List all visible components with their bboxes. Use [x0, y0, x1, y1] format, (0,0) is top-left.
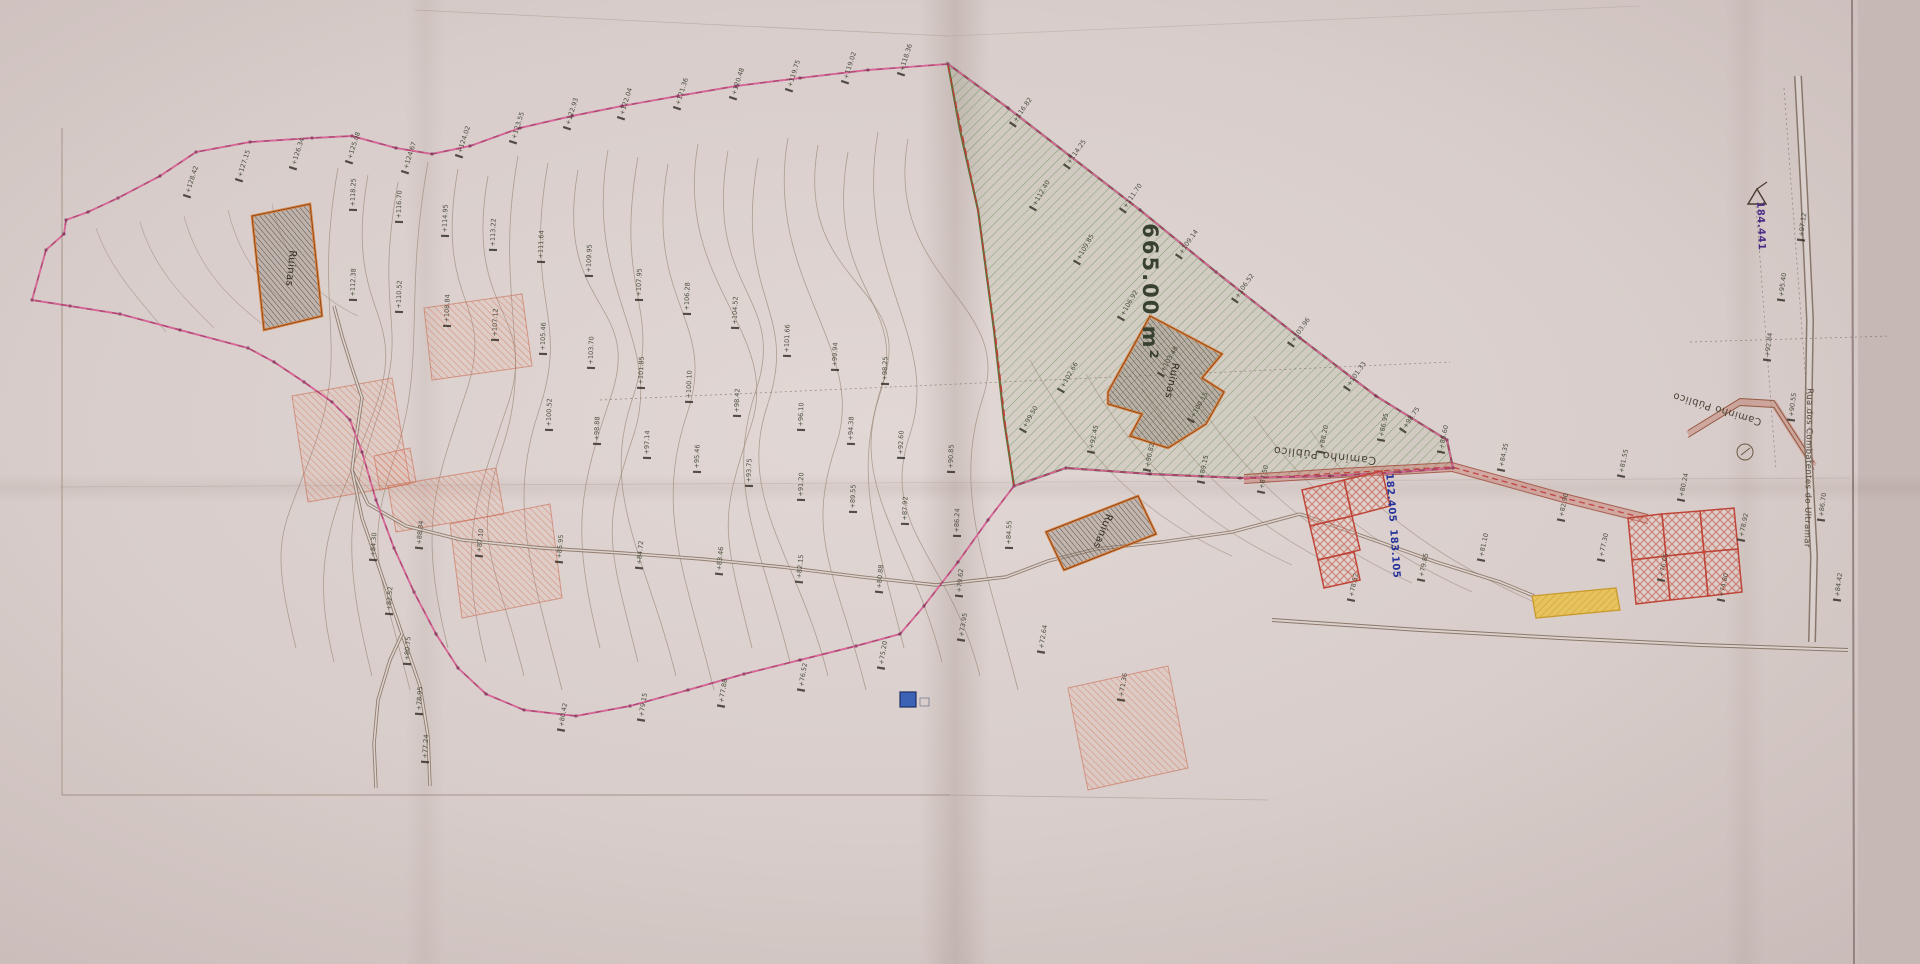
spot-tick	[745, 485, 753, 487]
spot-elevation: +98.88	[592, 416, 601, 445]
spot-tick	[443, 325, 451, 327]
boundary-pin	[956, 560, 959, 563]
boundary-pin	[374, 498, 377, 501]
boundary-pin	[310, 136, 313, 139]
spot-elevation: +95.46	[692, 444, 701, 473]
spot-value: +105.46	[539, 322, 548, 350]
boundary-pin	[30, 298, 33, 301]
spot-tick	[637, 387, 645, 389]
boundary-pin	[116, 196, 119, 199]
spot-value: +89.55	[849, 484, 858, 508]
spot-tick	[881, 383, 889, 385]
boundary-pin	[434, 632, 437, 635]
boundary-pin	[246, 346, 249, 349]
boundary-pin	[44, 248, 47, 251]
boundary-pin	[330, 400, 333, 403]
spot-value: +101.85	[637, 356, 646, 384]
spot-elevation: +89.55	[848, 484, 857, 513]
spot-value: +110.52	[395, 280, 404, 308]
spot-elevation: +96.10	[796, 402, 805, 431]
boundary-pin	[1328, 474, 1331, 477]
spot-elevation: +94.38	[846, 416, 855, 445]
spot-value: +98.88	[593, 416, 602, 440]
spot-tick	[731, 327, 739, 329]
spot-value: +116.70	[395, 190, 404, 218]
spot-tick	[585, 275, 593, 277]
boundary-pin	[1138, 208, 1141, 211]
spot-value: +98.42	[733, 388, 742, 412]
spot-tick	[783, 355, 791, 357]
boundary-pin	[798, 658, 801, 661]
spot-value: +80.75	[403, 636, 413, 661]
building-red-hatched	[1662, 511, 1704, 556]
spot-value: +113.22	[489, 218, 498, 246]
spot-elevation: +99.94	[830, 342, 839, 371]
fold-crease	[0, 474, 1920, 502]
spot-elevation: +84.55	[1004, 520, 1013, 549]
boundary-pin	[64, 218, 67, 221]
boundary-pin	[158, 174, 161, 177]
boundary-pin	[194, 150, 197, 153]
spot-tick	[545, 429, 553, 431]
spot-value: +118.25	[349, 178, 358, 206]
spot-elevation: +86.24	[952, 508, 961, 537]
spot-elevation: +97.14	[642, 430, 651, 459]
boundary-pin	[854, 644, 857, 647]
boundary-pin	[62, 232, 65, 235]
spot-tick	[733, 415, 741, 417]
spot-elevation: +98.42	[732, 388, 741, 417]
spot-value: +97.14	[643, 430, 652, 454]
spot-tick	[901, 523, 909, 525]
spot-tick	[1005, 547, 1013, 549]
boundary-pin	[272, 360, 275, 363]
spot-tick	[831, 369, 839, 371]
boundary-pin	[1451, 466, 1454, 469]
spot-tick	[593, 443, 601, 445]
spot-value: +96.10	[797, 402, 806, 426]
building-red-hatched	[1666, 552, 1708, 600]
spot-value: +100.10	[685, 370, 694, 398]
survey-map: +128.42+127.15+126.34+125.08+124.67+124.…	[0, 0, 1920, 964]
survey-point-label: 184.441	[1754, 201, 1767, 250]
boundary-pin	[1012, 484, 1015, 487]
spot-tick	[847, 443, 855, 445]
spot-value: +92.60	[897, 430, 906, 454]
spot-value: +106.28	[683, 282, 692, 310]
spot-value: +101.66	[783, 324, 792, 352]
spot-tick	[849, 511, 857, 513]
spot-value: +114.95	[441, 204, 450, 232]
spot-value: +108.84	[443, 294, 452, 322]
spot-tick	[947, 471, 955, 473]
spot-tick	[395, 311, 403, 313]
boundary-pin	[248, 140, 251, 143]
spot-tick	[349, 209, 357, 211]
spot-tick	[441, 235, 449, 237]
spot-elevation: +93.75	[744, 458, 753, 487]
boundary-pin	[1006, 106, 1009, 109]
spot-tick	[797, 499, 805, 501]
spot-value: +87.92	[901, 496, 910, 520]
area-label: 665.00 m²	[1138, 223, 1162, 360]
spot-elevation: +90.85	[946, 444, 955, 473]
boundary-pin	[798, 76, 801, 79]
spot-tick	[491, 339, 499, 341]
spot-tick	[349, 299, 357, 301]
spot-tick	[683, 313, 691, 315]
boundary-pin	[412, 590, 415, 593]
spot-value: +78.95	[415, 686, 425, 711]
boundary-pin	[742, 672, 745, 675]
boundary-pin	[1064, 466, 1067, 469]
building-red-hatched	[1700, 508, 1738, 552]
hatched-terrain-area	[424, 294, 532, 380]
hatched-terrain-area	[450, 504, 562, 618]
boundary-pin	[302, 380, 305, 383]
spot-elevation: +87.92	[900, 496, 909, 525]
spot-tick	[537, 261, 545, 263]
spot-value: +107.95	[635, 268, 644, 296]
spot-value: +99.94	[831, 342, 840, 366]
boundary-pin	[456, 666, 459, 669]
spot-tick	[635, 299, 643, 301]
spot-tick	[953, 535, 961, 537]
spot-value: +112.38	[349, 268, 358, 296]
spot-tick	[797, 429, 805, 431]
spot-value: +111.64	[537, 230, 546, 258]
boundary-pin	[394, 146, 397, 149]
boundary-pin	[468, 144, 471, 147]
boundary-pin	[86, 210, 89, 213]
spot-elevation: +91.20	[796, 472, 805, 501]
spot-elevation: +98.25	[880, 356, 889, 385]
spot-value: +77.24	[421, 734, 431, 759]
boundary-pin	[430, 152, 433, 155]
boundary-pin	[118, 312, 121, 315]
spot-tick	[539, 353, 547, 355]
spot-tick	[693, 471, 701, 473]
spot-value: +100.52	[545, 398, 554, 426]
spot-value: +90.85	[947, 444, 956, 468]
spot-tick	[643, 457, 651, 459]
spot-value: +94.38	[847, 416, 856, 440]
boundary-pin	[986, 518, 989, 521]
boundary-pin	[522, 708, 525, 711]
boundary-pin	[360, 450, 363, 453]
boundary-pin	[1374, 394, 1377, 397]
spot-tick	[395, 221, 403, 223]
spot-value: +91.20	[797, 472, 806, 496]
boundary-pin	[898, 632, 901, 635]
spot-value: +109.95	[585, 244, 594, 272]
spot-value: +103.70	[587, 336, 596, 364]
spot-value: +93.75	[745, 458, 754, 482]
boundary-pin	[946, 62, 949, 65]
boundary-pin	[922, 604, 925, 607]
water-tank-square	[900, 692, 916, 707]
boundary-pin	[1238, 476, 1241, 479]
building-red-hatched	[1628, 514, 1666, 560]
boundary-pin	[1214, 270, 1217, 273]
spot-tick	[685, 401, 693, 403]
boundary-pin	[686, 688, 689, 691]
spot-elevation: +92.60	[896, 430, 905, 459]
spot-value: +86.24	[953, 508, 962, 532]
boundary-pin	[574, 714, 577, 717]
spot-value: +104.52	[731, 296, 740, 324]
scanned-plan-photo: +128.42+127.15+126.34+125.08+124.67+124.…	[0, 0, 1920, 964]
spot-value: +82.52	[385, 586, 395, 611]
boundary-pin	[348, 418, 351, 421]
boundary-pin	[1398, 470, 1401, 473]
spot-tick	[897, 457, 905, 459]
spot-tick	[587, 367, 595, 369]
boundary-pin	[628, 704, 631, 707]
boundary-pin	[178, 328, 181, 331]
paper-background	[0, 0, 1920, 964]
spot-value: +84.30	[369, 532, 379, 557]
spot-tick	[489, 249, 497, 251]
boundary-pin	[392, 546, 395, 549]
boundary-pin	[68, 304, 71, 307]
spot-value: +107.12	[491, 308, 500, 336]
spot-value: +98.25	[881, 356, 890, 380]
boundary-pin	[866, 68, 869, 71]
hatched-terrain-area	[1068, 666, 1188, 790]
boundary-pin	[484, 692, 487, 695]
spot-value: +95.46	[693, 444, 702, 468]
boundary-pin	[1148, 472, 1151, 475]
spot-value: +84.55	[1005, 520, 1014, 544]
